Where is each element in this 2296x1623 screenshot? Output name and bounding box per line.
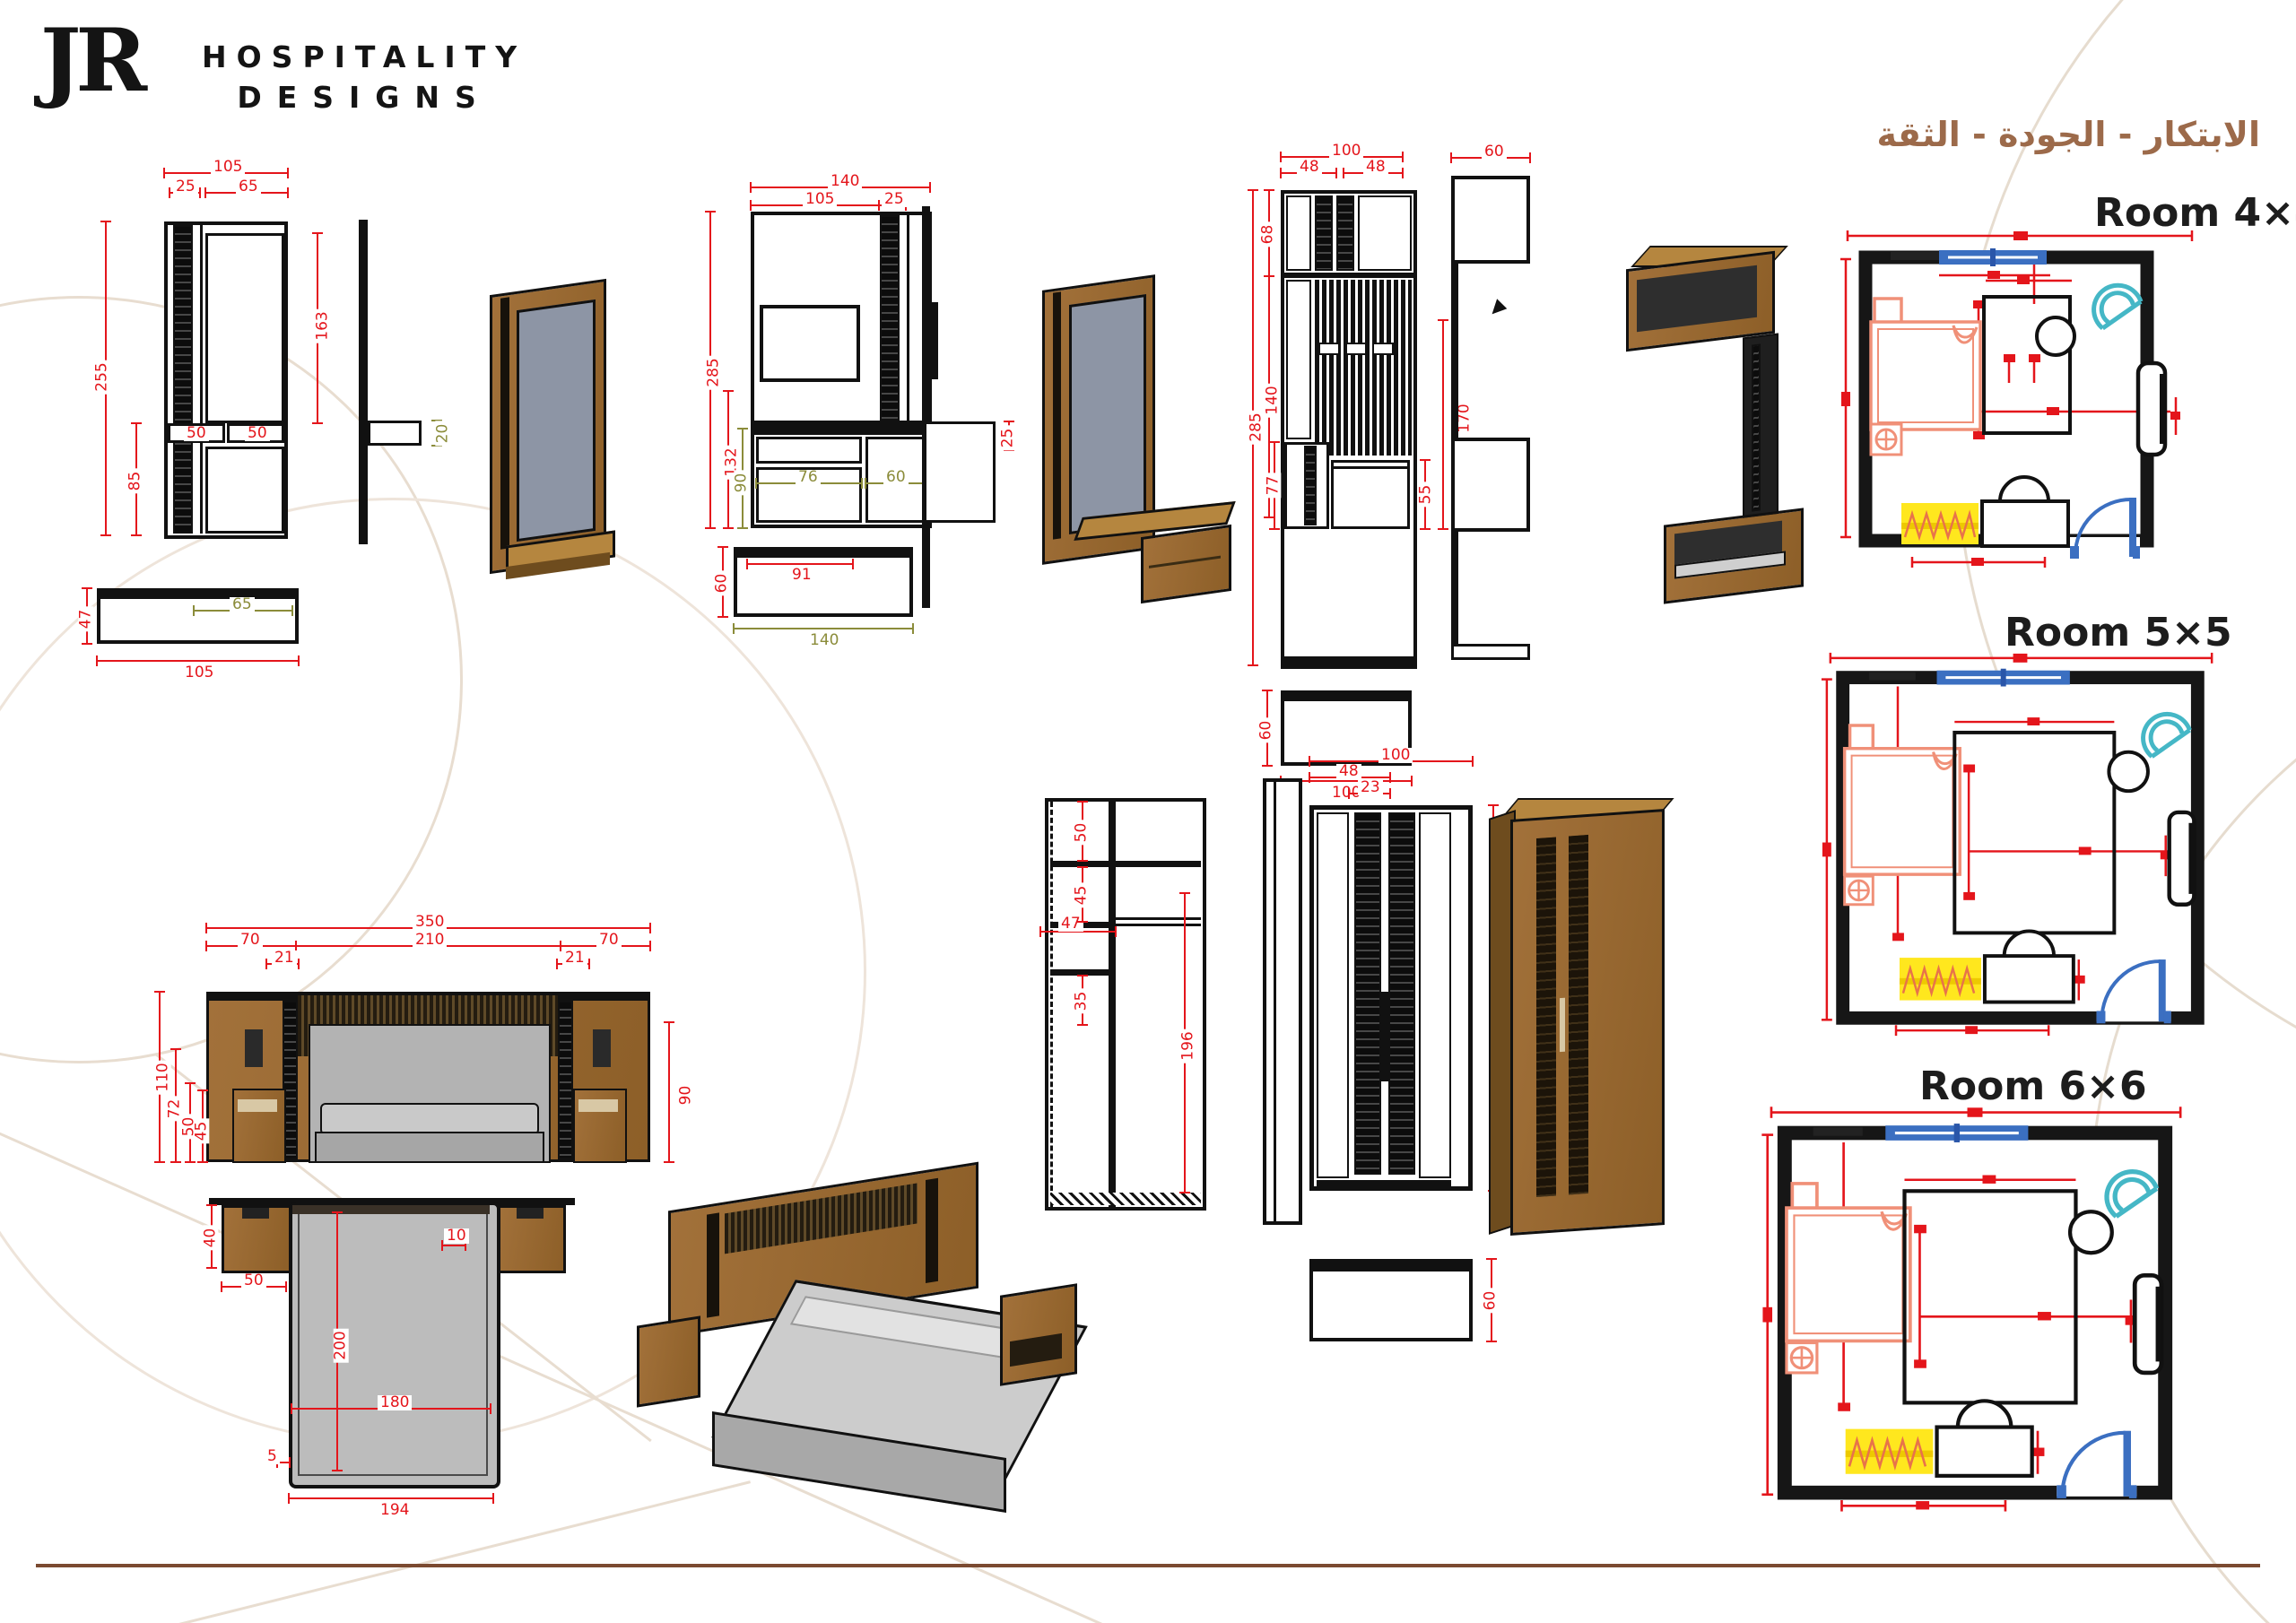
dim-label: 285 [707, 355, 722, 389]
window [1937, 669, 2070, 687]
dim-label: 105 [803, 192, 837, 207]
mattress-inner [298, 1211, 488, 1476]
window [1939, 248, 2047, 266]
carved-strip [1388, 812, 1415, 1175]
nightstand [232, 1089, 286, 1163]
render-vanity-3d [1024, 269, 1235, 601]
side-outline [1263, 778, 1302, 1225]
plinth-hatch [1050, 1193, 1201, 1205]
dim-label: 255 [95, 360, 110, 394]
console-symbol [2135, 1275, 2162, 1373]
plinth [1284, 656, 1413, 665]
carved-strip [558, 1001, 573, 1159]
dim-label: 110 [156, 1060, 171, 1094]
hang-rail [1116, 924, 1201, 926]
dim-label: 194 [378, 1503, 412, 1518]
side-panel [359, 220, 368, 544]
dim-label: 85 [127, 469, 143, 494]
top-door [1358, 195, 1412, 271]
dim-label: 91 [789, 568, 814, 583]
dim-label: 350 [413, 915, 447, 930]
slab-edge [1284, 694, 1408, 701]
floor-plan-room-4x4 [1831, 221, 2208, 587]
dim-label: 10 [444, 1228, 469, 1244]
dim-label: 60 [1258, 718, 1274, 743]
dim-label: 5 [265, 1449, 280, 1464]
dim-label: 21 [272, 950, 297, 966]
panel-divider [200, 225, 203, 534]
dim-label: 35 [1074, 989, 1089, 1014]
mirror [1069, 294, 1146, 534]
side-cabinet [924, 421, 996, 523]
dim-label: 285 [1249, 410, 1265, 444]
nightstand-3d [1000, 1283, 1077, 1386]
logo-wordmark: HOSPITALITY DESIGNS [202, 39, 526, 115]
logo-word-2: DESIGNS [202, 80, 526, 115]
luggage-rack-symbol [1901, 503, 1979, 544]
mirror-door-panel [205, 233, 284, 423]
dim-label: 90 [734, 471, 749, 496]
inset-shelf [1345, 343, 1367, 355]
carved-strip [500, 297, 509, 549]
side-column [1286, 280, 1311, 439]
tv-niche [760, 305, 860, 382]
carved-strip [1752, 343, 1761, 511]
dim-label: 210 [413, 933, 447, 948]
stile [907, 215, 909, 421]
spine-panel [1743, 334, 1779, 526]
dim-label: 25 [1000, 426, 1015, 451]
dim-label: 65 [230, 597, 255, 612]
inset-shelf [1372, 343, 1394, 355]
dim-label: 196 [1181, 1028, 1196, 1063]
back-edge [100, 592, 295, 599]
luggage-rack-symbol [1846, 1429, 1934, 1474]
tv-bump [930, 302, 938, 379]
lower-door-panel [205, 447, 284, 534]
dim-label: 48 [1363, 160, 1388, 175]
dim-label: 50 [1074, 820, 1089, 846]
render-tv-unit-3d [1610, 240, 1803, 621]
nightstand-3d [637, 1315, 700, 1407]
drawing-wardrobe-side-view [1259, 773, 1309, 1235]
inner-line [1274, 782, 1276, 1221]
dim-label: 47 [1058, 916, 1083, 932]
dim-label: 200 [334, 1328, 349, 1362]
dim-label: 100 [1329, 143, 1363, 159]
side-panel [922, 206, 930, 608]
wardrobe-outline [1045, 798, 1206, 1211]
dim-label: 45 [194, 1119, 209, 1144]
center-divider [1109, 802, 1116, 1207]
dim-label: 105 [182, 665, 216, 681]
shelf [1116, 861, 1201, 867]
dim-label: 163 [316, 308, 331, 343]
dim-label: 77 [1265, 473, 1281, 499]
slat-wall [1315, 280, 1412, 456]
drawing-vanity-side-view: 25 [922, 206, 1025, 628]
dim-label: 48 [1297, 160, 1322, 175]
drawing-dresser-front-elevation: 105 25 65 255 163 85 50 50 [85, 135, 381, 556]
bed-base [315, 1132, 544, 1163]
door-stile [1317, 812, 1349, 1178]
dim-label: 140 [1265, 383, 1281, 417]
bench-top-line [1334, 466, 1407, 469]
logo-monogram: JR [40, 20, 142, 101]
dim-label: 60 [1483, 1289, 1498, 1314]
dim-label: 70 [238, 933, 263, 948]
dim-label: 140 [828, 174, 862, 189]
render-bed-3d [619, 1137, 1081, 1523]
plinth [1451, 644, 1530, 660]
dim-label: 65 [236, 179, 261, 195]
dim-label: 21 [562, 950, 587, 966]
dim-label: 48 [1336, 764, 1361, 779]
carved-strip [1304, 446, 1317, 525]
mirror [517, 299, 596, 542]
window [1885, 1124, 2028, 1142]
dim-label: 105 [211, 160, 245, 175]
cursor-icon [1492, 299, 1509, 317]
door-stile [1419, 812, 1451, 1178]
back-spine [1451, 532, 1458, 644]
bottom-rail [1317, 1180, 1451, 1187]
dim-label: 50 [184, 426, 209, 441]
dim-label: 60 [1482, 144, 1507, 160]
console-symbol [2170, 812, 2196, 905]
drawing-wardrobe-top-view: 60 [1302, 1246, 1518, 1367]
dim-label: 140 [807, 633, 841, 648]
dim-label: 50 [241, 1273, 266, 1289]
sconce [593, 1029, 611, 1067]
dim-label: 60 [883, 470, 909, 485]
drawing-tv-unit-side-view: 60 [1449, 146, 1544, 671]
carved-strip [1354, 812, 1381, 1175]
sconce [245, 1029, 263, 1067]
drawer [756, 437, 862, 464]
shelf-edge [1284, 273, 1413, 278]
render-wardrobe-3d [1480, 787, 1682, 1254]
dim-label: 100 [1378, 748, 1413, 763]
dim-label: 45 [1074, 883, 1089, 908]
dim-label: 180 [378, 1395, 412, 1410]
dim-label: 60 [714, 571, 729, 596]
footer-rule [36, 1564, 2260, 1567]
tv-bench [1331, 460, 1410, 529]
dim-label: 20 [435, 421, 450, 447]
design-sheet: JR HOSPITALITY DESIGNS الابتكار - الجودة… [0, 0, 2296, 1623]
door-handle [1381, 992, 1388, 1081]
side-shelf [368, 421, 422, 446]
dim-label: 47 [78, 607, 93, 632]
dim-label: 25 [882, 192, 907, 207]
carved-strip [1336, 195, 1354, 271]
floor-plan-room-5x5 [1816, 647, 2224, 1045]
nightstand [496, 1205, 566, 1273]
carved-strip [173, 225, 193, 534]
dim-label: 40 [203, 1226, 218, 1251]
luggage-rack-symbol [1900, 958, 1981, 1000]
drawing-dresser-side-view: 20 [359, 218, 457, 554]
dim-label: 70 [596, 933, 622, 948]
console-symbol [2138, 363, 2166, 455]
drawing-wardrobe-interior-elevation: 50 47 45 35 196 [1039, 778, 1263, 1240]
dim-label: 76 [796, 470, 821, 485]
carved-strip [1315, 195, 1333, 271]
lower-box [1451, 438, 1530, 532]
dim-label: 68 [1260, 222, 1275, 247]
top-door [1286, 195, 1311, 271]
inset-shelf [1318, 343, 1340, 355]
headboard-band [292, 1205, 490, 1214]
front-face [1510, 809, 1665, 1236]
back-edge [1313, 1263, 1469, 1271]
hang-rail [1116, 917, 1201, 920]
drawing-bed-top-view: 40 50 10 200 180 5 194 [202, 1185, 587, 1517]
dim-label: 23 [1358, 780, 1383, 795]
logo-word-1: HOSPITALITY [202, 39, 526, 74]
nightstand [222, 1205, 291, 1273]
drawer-box [1141, 525, 1231, 603]
dim-label: 90 [678, 1083, 693, 1108]
carved-strip [1053, 291, 1061, 539]
dim-label: 55 [1418, 482, 1433, 508]
desk-top [751, 424, 932, 431]
dim-label: 50 [245, 426, 270, 441]
arabic-tagline: الابتكار - الجودة - الثقة [1830, 115, 2260, 154]
slab-edge [737, 551, 909, 558]
mattress [320, 1103, 539, 1135]
drawing-dresser-top-view: 65 47 105 [88, 581, 308, 675]
carved-strip [880, 215, 900, 421]
upper-box [1451, 176, 1530, 264]
dim-label: 25 [173, 179, 198, 195]
render-dresser-3d [466, 269, 641, 601]
floor-plan-room-6x6 [1756, 1101, 2194, 1521]
